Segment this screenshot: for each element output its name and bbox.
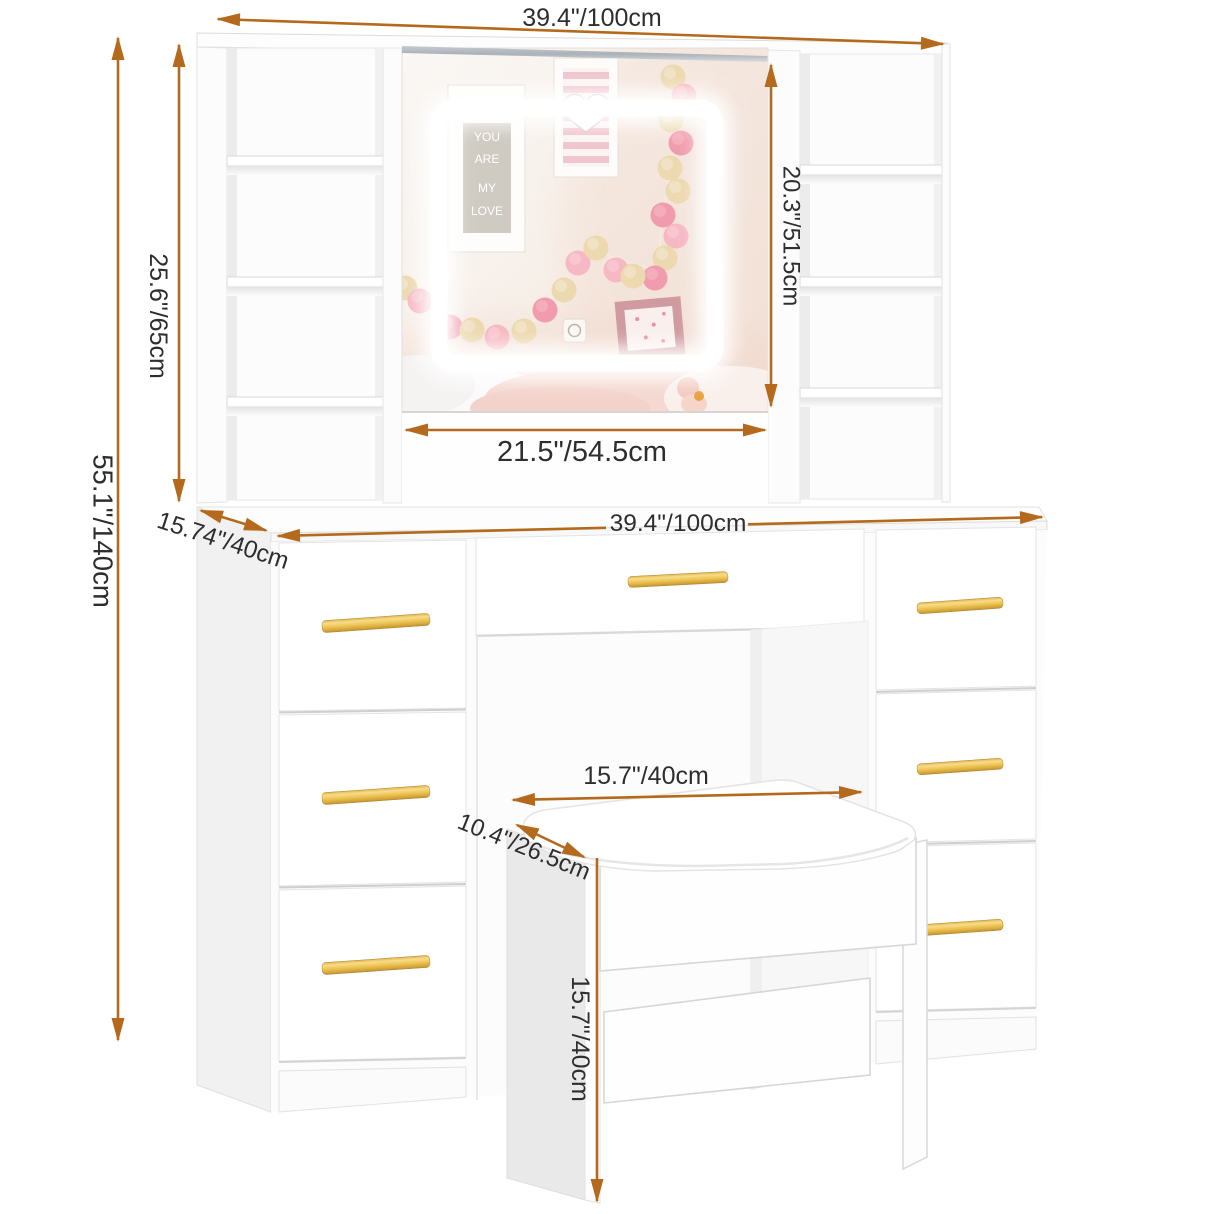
svg-text:15.7"/40cm: 15.7"/40cm <box>583 762 709 790</box>
svg-text:15.7"/40cm: 15.7"/40cm <box>566 976 594 1102</box>
svg-text:21.5"/54.5cm: 21.5"/54.5cm <box>497 436 667 468</box>
svg-text:20.3"/51.5cm: 20.3"/51.5cm <box>778 166 805 307</box>
svg-text:ARE: ARE <box>475 152 500 166</box>
svg-text:55.1"/140cm: 55.1"/140cm <box>88 454 119 607</box>
svg-text:MY: MY <box>478 181 496 195</box>
svg-text:39.4"/100cm: 39.4"/100cm <box>610 510 747 537</box>
svg-text:YOU: YOU <box>474 130 500 144</box>
svg-text:39.4"/100cm: 39.4"/100cm <box>522 4 662 32</box>
svg-text:LOVE: LOVE <box>471 204 503 218</box>
svg-text:25.6"/65cm: 25.6"/65cm <box>144 253 172 379</box>
